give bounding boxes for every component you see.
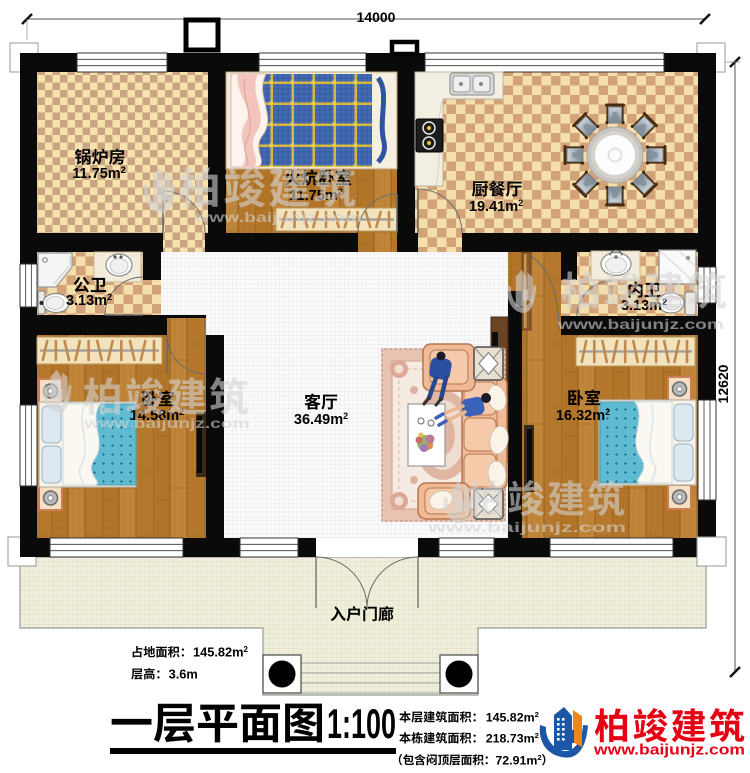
svg-text:12620: 12620 xyxy=(715,364,731,403)
svg-text:1:100: 1:100 xyxy=(327,700,396,747)
svg-text:145.82m2: 145.82m2 xyxy=(193,644,249,659)
svg-text:www.baijunjz.com: www.baijunjz.com xyxy=(593,741,745,758)
svg-text:11.75m2: 11.75m2 xyxy=(72,165,125,182)
svg-text:36.49m2: 36.49m2 xyxy=(294,411,348,428)
svg-text:www.baijunjz.com: www.baijunjz.com xyxy=(83,415,249,431)
svg-text:3.6m: 3.6m xyxy=(169,666,198,681)
svg-text:www.baijunjz.com: www.baijunjz.com xyxy=(193,209,362,225)
svg-text:72.91m2: 72.91m2 xyxy=(495,753,541,767)
svg-text:16.32m2: 16.32m2 xyxy=(556,407,610,424)
svg-text:218.73m2: 218.73m2 xyxy=(486,731,539,745)
svg-text:14000: 14000 xyxy=(357,9,396,25)
svg-text:19.41m2: 19.41m2 xyxy=(469,198,523,215)
svg-text:3.13m2: 3.13m2 xyxy=(66,292,112,309)
svg-text:www.baijunjz.com: www.baijunjz.com xyxy=(557,316,724,332)
svg-text:145.82m2: 145.82m2 xyxy=(486,710,539,724)
svg-text:www.baijunjz.com: www.baijunjz.com xyxy=(426,519,626,535)
